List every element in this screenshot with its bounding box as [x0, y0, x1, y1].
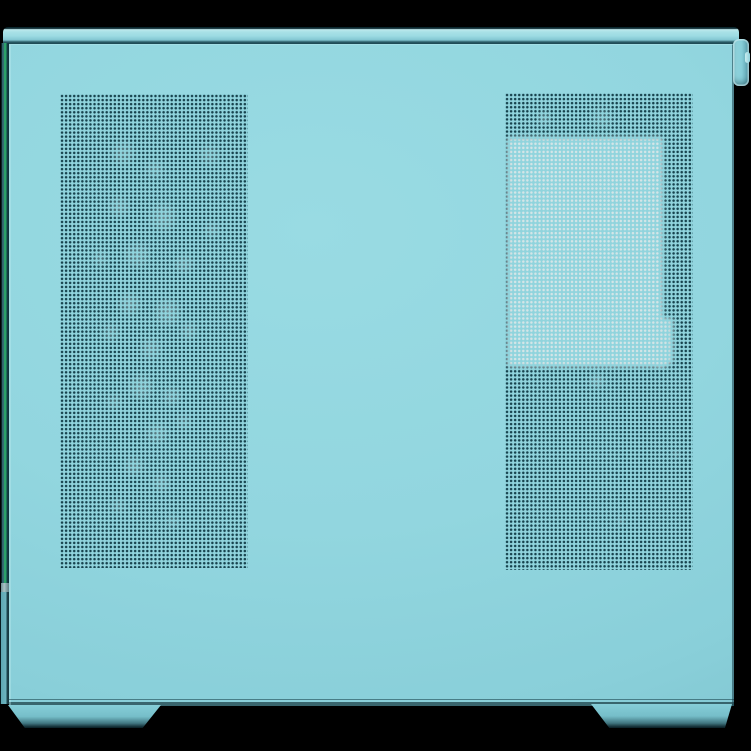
- case-foot-rear: [591, 704, 732, 728]
- panel-bottom-seam: [9, 699, 734, 700]
- mesh-left-perforation: [60, 94, 248, 568]
- case-top-edge: [3, 27, 739, 44]
- front-panel-lower-edge: [0, 592, 9, 704]
- mesh-right-perforation: [505, 93, 693, 570]
- panel-handle-screw: [745, 52, 750, 63]
- product-photo-stage: [0, 0, 751, 751]
- mesh-zone-right: [505, 93, 693, 570]
- case-foot-front: [8, 705, 161, 728]
- mesh-zone-left: [60, 94, 248, 568]
- front-glass-edge: [1, 43, 9, 592]
